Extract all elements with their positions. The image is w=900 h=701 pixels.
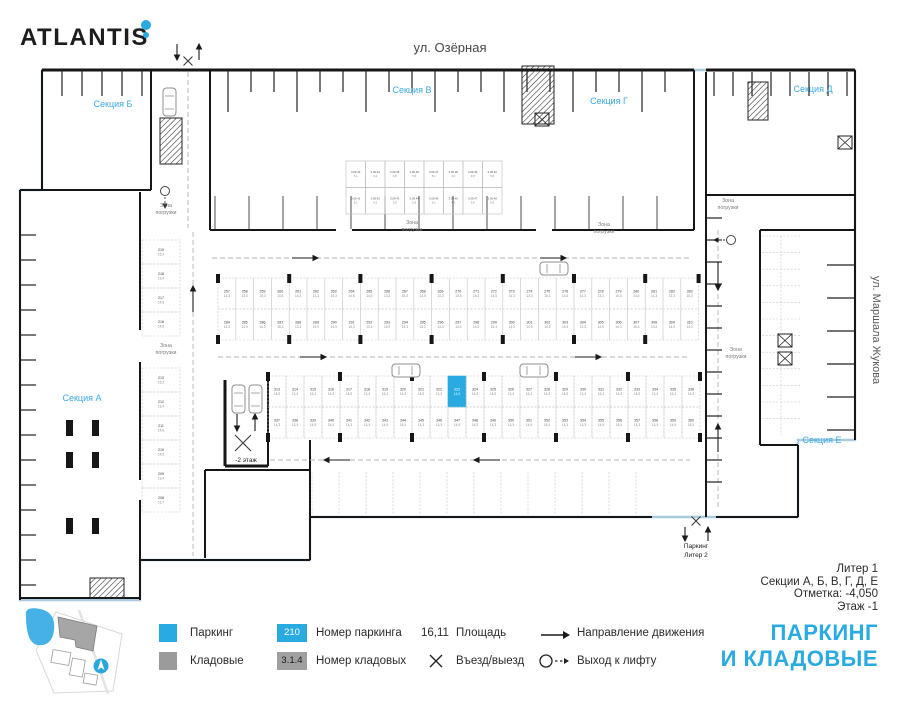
stall-label: 15,3 [348, 325, 354, 329]
stall-label: 265 [366, 290, 372, 294]
storage-cell-label: 3,8 [393, 174, 397, 178]
storage-cell-label: 5,6 [412, 174, 416, 178]
stall-label: 273 [509, 290, 515, 294]
stall-label: 209 [158, 472, 164, 476]
stall-label: 14,3 [274, 423, 280, 427]
stall-label: 354 [580, 419, 586, 423]
stall-label: 337 [274, 419, 280, 423]
stall-label: 13,3 [437, 325, 443, 329]
stall-label: 15,3 [598, 392, 604, 396]
stall-label: 272 [491, 290, 497, 294]
stall-label: 328 [544, 388, 550, 392]
loading-zone-label: Зона [730, 347, 742, 353]
storage-cell-label: 4,2 [373, 201, 377, 205]
stall-label: 213 [158, 376, 164, 380]
section-label-d: Секция Д [793, 84, 832, 94]
legend-parking-swatch [159, 624, 177, 642]
lift-exit-icon [538, 653, 572, 669]
stall-label: 14,3 [687, 325, 693, 329]
stall-label: 260 [277, 290, 283, 294]
stall-label: 305 [598, 321, 604, 325]
stall-label: 14,3 [400, 392, 406, 396]
stall-label: 263 [331, 290, 337, 294]
stall-label: 14,8 [158, 429, 164, 433]
stall-label: 355 [598, 419, 604, 423]
stall-label: 294 [402, 321, 408, 325]
stall-label: 329 [562, 388, 568, 392]
stall-label: 332 [616, 388, 622, 392]
loading-zone-label: погрузки [594, 229, 615, 235]
stall-label: 323 [454, 388, 460, 392]
stall-label: 301 [527, 321, 533, 325]
stall-label: 14,3 [490, 423, 496, 427]
bottom-entrance-label-2: Литер 2 [684, 552, 708, 559]
drawing-info: Литер 1 Секции А, Б, В, Г, Д, Е Отметка:… [761, 563, 878, 613]
stall-label: 353 [562, 419, 568, 423]
stall-label: 269 [438, 290, 444, 294]
stall-label: 309 [669, 321, 675, 325]
stall-label: 357 [634, 419, 640, 423]
stall-label: 14,9 [598, 423, 604, 427]
stall-label: 14,3 [418, 423, 424, 427]
stall-label: 296 [438, 321, 444, 325]
stall-label: 14,3 [473, 325, 479, 329]
stall-label: 288 [295, 321, 301, 325]
loading-zone-label: Зона [160, 203, 172, 209]
stall-label: 14,3 [259, 325, 265, 329]
stall-label: 313 [274, 388, 280, 392]
page-title-line-2: И КЛАДОВЫЕ [721, 646, 878, 672]
stall-label: 15,3 [400, 423, 406, 427]
stall-label: 14,3 [331, 325, 337, 329]
storage-cell-label: 4,2 [451, 201, 455, 205]
stall-label: 343 [382, 419, 388, 423]
stall-label: 277 [580, 290, 586, 294]
stall-label: 14,3 [472, 392, 478, 396]
stall-label: 13,3 [508, 423, 514, 427]
stall-label: 14,5 [274, 392, 280, 396]
stall-label: 14,3 [634, 423, 640, 427]
stall-label: 322 [436, 388, 442, 392]
stall-label: 13,3 [455, 294, 461, 298]
section-label-a: Секция А [62, 393, 101, 403]
stall-label: 13,3 [384, 294, 390, 298]
stall-label: 321 [418, 388, 424, 392]
storage-cell-label: 5,6 [412, 201, 416, 205]
stall-label: 14,3 [651, 294, 657, 298]
stall-label: 258 [242, 290, 248, 294]
stall-label: 338 [292, 419, 298, 423]
stall-label: 14,9 [382, 423, 388, 427]
stall-label: 13,3 [580, 392, 586, 396]
section-label-b: Секция Б [94, 99, 133, 109]
stall-label: 14,9 [455, 325, 461, 329]
legend-area-label: Площадь [456, 627, 506, 639]
car-icon [163, 88, 176, 116]
stall-label: 15,3 [633, 325, 639, 329]
stall-label: 14,3 [580, 294, 586, 298]
stall-label: 282 [669, 290, 675, 294]
legend-lift-label: Выход к лифту [577, 655, 656, 667]
stall-label: 211 [158, 424, 164, 428]
stall-label: 283 [687, 290, 693, 294]
stall-label: 266 [384, 290, 390, 294]
stall-label: 13,3 [669, 294, 675, 298]
stall-label: 14,9 [384, 325, 390, 329]
stall-label: 324 [472, 388, 478, 392]
page: ATLANTIS ул. Озёрная ул. Маршала Жукова [0, 0, 900, 701]
storage-cell-label: 5,6 [490, 174, 494, 178]
stall-label: 14,3 [437, 294, 443, 298]
stall-label: 15,3 [544, 423, 550, 427]
stall-label: 292 [366, 321, 372, 325]
stall-label: 270 [455, 290, 461, 294]
entry-exit-icon [428, 653, 444, 669]
storage-cell-label: 5,6 [490, 201, 494, 205]
storage-cell-label: 3,8 [471, 174, 475, 178]
stall-label: 15,3 [688, 423, 694, 427]
stall-label: 14,5 [562, 392, 568, 396]
stall-label: 15,2 [158, 381, 164, 385]
legend-storage-swatch [159, 652, 177, 670]
stall-label: 341 [346, 419, 352, 423]
stall-label: 347 [454, 419, 460, 423]
stall-label: 320 [400, 388, 406, 392]
stall-label: 345 [418, 419, 424, 423]
stall-label: 342 [364, 419, 370, 423]
stall-label: 325 [490, 388, 496, 392]
stall-label: 14,5 [562, 294, 568, 298]
loading-zone-label: Зона [406, 220, 418, 226]
stall-label: 349 [490, 419, 496, 423]
stall-label: 216 [158, 320, 164, 324]
stall-label: 281 [651, 290, 657, 294]
stall-label: 319 [382, 388, 388, 392]
stall-label: 291 [349, 321, 355, 325]
stall-label: 348 [472, 419, 478, 423]
stall-label: 14,3 [328, 392, 334, 396]
stall-label: 352 [544, 419, 550, 423]
stall-label: 14,5 [454, 392, 460, 396]
stall-label: 310 [687, 321, 693, 325]
stall-label: 300 [509, 321, 515, 325]
loading-zone-label: погрузки [156, 210, 177, 216]
car-icon [392, 364, 420, 377]
loading-zone-label: погрузки [726, 354, 747, 360]
plan-outer-boundary [20, 70, 855, 600]
stall-label: 285 [242, 321, 248, 325]
stall-label: 289 [313, 321, 319, 325]
stall-label: 14,3 [509, 294, 515, 298]
loading-zone-label: погрузки [402, 227, 423, 233]
stall-label: 15,3 [526, 392, 532, 396]
stall-label: 317 [346, 388, 352, 392]
car-icon [520, 364, 548, 377]
stall-label: 13,3 [292, 423, 298, 427]
stall-label: 276 [562, 290, 568, 294]
stall-label: 218 [158, 272, 164, 276]
stall-label: 359 [670, 419, 676, 423]
storage-cell-label: 5,1 [354, 201, 358, 205]
stall-label: 284 [224, 321, 230, 325]
legend-storage-number-swatch: 3.1.4 [277, 652, 307, 670]
stall-label: 13,3 [526, 294, 532, 298]
stall-label: 14,9 [526, 423, 532, 427]
stall-label: 14,5 [277, 294, 283, 298]
stall-label: 15,3 [615, 294, 621, 298]
stall-label: 14,6 [158, 301, 164, 305]
stall-label: 15,3 [310, 392, 316, 396]
stall-label: 268 [420, 290, 426, 294]
stall-label: 14,5 [491, 294, 497, 298]
stall-label: 219 [158, 248, 164, 252]
loading-zone-label: погрузки [156, 350, 177, 356]
page-title-line-1: ПАРКИНГ [721, 620, 878, 646]
stall-label: 318 [364, 388, 370, 392]
stall-label: 15,3 [472, 423, 478, 427]
stall-label: 15,3 [562, 325, 568, 329]
stall-label: 14,9 [242, 325, 248, 329]
ramp-level-label: -2 этаж [235, 457, 257, 464]
section-label-e: Секция Е [802, 435, 841, 445]
stall-label: 335 [670, 388, 676, 392]
stall-label: 14,9 [310, 423, 316, 427]
stall-label: 15,3 [491, 325, 497, 329]
stall-label: 13,3 [436, 392, 442, 396]
stall-label: 13,3 [313, 294, 319, 298]
stall-label: 14,5 [348, 294, 354, 298]
stall-label: 13,3 [364, 423, 370, 427]
site-locator-map [26, 608, 122, 694]
stall-label: 297 [455, 321, 461, 325]
stall-label: 14,9 [669, 325, 675, 329]
stall-label: 307 [633, 321, 639, 325]
stall-label: 14,5 [633, 294, 639, 298]
loading-zone-label: Зона [722, 198, 734, 204]
stall-label: 15,3 [259, 294, 265, 298]
storage-cell-label: 5,1 [432, 201, 436, 205]
stall-label: 13,3 [292, 392, 298, 396]
storage-cell-label: 4,2 [451, 174, 455, 178]
info-elevation: Отметка: -4,050 [761, 588, 878, 601]
stall-label: 308 [651, 321, 657, 325]
stall-label: 257 [224, 290, 230, 294]
storage-cell-label: 5,1 [354, 174, 358, 178]
stall-label: 314 [292, 388, 298, 392]
page-title: ПАРКИНГ И КЛАДОВЫЕ [721, 620, 878, 672]
stall-label: 344 [400, 419, 406, 423]
stall-label: 274 [527, 290, 533, 294]
stall-label: 14,3 [224, 294, 230, 298]
stall-label: 13,3 [224, 325, 230, 329]
stall-label: 14,9 [313, 325, 319, 329]
stall-label: 13,3 [436, 423, 442, 427]
legend-parking-label: Паркинг [190, 627, 233, 639]
stall-label: 13,3 [652, 392, 658, 396]
legend-direction-label: Направление движения [577, 627, 704, 639]
stall-label: 346 [436, 419, 442, 423]
stall-label: 13,3 [508, 392, 514, 396]
legend-area-sample: 16,11 [421, 627, 449, 639]
stall-label: 14,3 [366, 294, 372, 298]
stall-label: 14,5 [418, 392, 424, 396]
stall-label: 208 [158, 496, 164, 500]
stall-label: 330 [580, 388, 586, 392]
stall-label: 15,3 [402, 294, 408, 298]
stall-label: 299 [491, 321, 497, 325]
stall-label: 13,4 [158, 477, 164, 481]
car-icon [249, 385, 262, 413]
legend-parking-number-swatch: 210 [277, 624, 307, 642]
section-label-g: Секция Г [590, 96, 628, 106]
stall-label: 13,3 [295, 325, 301, 329]
storage-cell-label: 4,2 [373, 174, 377, 178]
stall-label: 14,3 [402, 325, 408, 329]
stall-label: 15,3 [420, 325, 426, 329]
stall-label: 306 [616, 321, 622, 325]
stall-label: 14,3 [346, 423, 352, 427]
stall-label: 15,3 [328, 423, 334, 427]
stall-label: 279 [616, 290, 622, 294]
stall-label: 267 [402, 290, 408, 294]
stall-label: 315 [310, 388, 316, 392]
legend-entry-label: Въезд/выезд [456, 655, 524, 667]
stall-label: 15,3 [277, 325, 283, 329]
stall-label: 259 [260, 290, 266, 294]
stall-label: 275 [544, 290, 550, 294]
loading-zone-label: Зона [160, 343, 172, 349]
bottom-entrance-label-1: Паркинг [684, 543, 709, 550]
info-liter: Литер 1 [761, 563, 878, 576]
storage-cell-label: 3,8 [471, 201, 475, 205]
stall-label: 15,3 [687, 294, 693, 298]
stall-label: 14,3 [544, 392, 550, 396]
stall-label: 331 [598, 388, 604, 392]
legend-storage-number-label: Номер кладовых [316, 655, 406, 667]
stall-label: 14,5 [420, 294, 426, 298]
stall-label: 271 [473, 290, 479, 294]
stall-label: 290 [331, 321, 337, 325]
stall-label: 15,3 [382, 392, 388, 396]
stall-label: 316 [328, 388, 334, 392]
legend-storage-label: Кладовые [190, 655, 244, 667]
stall-label: 336 [688, 388, 694, 392]
stall-label: 14,5 [490, 392, 496, 396]
section-label-v: Секция В [392, 85, 431, 95]
stall-label: 295 [420, 321, 426, 325]
stall-label: 16,7 [158, 501, 164, 505]
stall-label: 14,9 [526, 325, 532, 329]
stall-label: 262 [313, 290, 319, 294]
loading-zone-label: погрузки [718, 205, 739, 211]
stall-label: 302 [544, 321, 550, 325]
stall-label: 339 [310, 419, 316, 423]
stall-label: 326 [508, 388, 514, 392]
stall-label: 298 [473, 321, 479, 325]
stall-label: 13,3 [580, 423, 586, 427]
stall-label: 327 [526, 388, 532, 392]
stall-label: 14,8 [158, 325, 164, 329]
stall-label: 14,9 [670, 423, 676, 427]
stall-label: 13,3 [651, 325, 657, 329]
stall-label: 303 [562, 321, 568, 325]
stall-label: 340 [328, 419, 334, 423]
stall-label: 293 [384, 321, 390, 325]
storage-cell-label: 5,1 [432, 174, 436, 178]
stall-label: 334 [652, 388, 658, 392]
storage-cell-label: 3,8 [393, 201, 397, 205]
info-floor: Этаж -1 [761, 601, 878, 614]
stall-label: 14,5 [634, 392, 640, 396]
stall-label: 13,3 [652, 423, 658, 427]
stall-label: 13,3 [364, 392, 370, 396]
stall-label: 287 [277, 321, 283, 325]
stall-label: 15,3 [473, 294, 479, 298]
stall-label: 356 [616, 419, 622, 423]
stall-label: 15,3 [544, 294, 550, 298]
stall-label: 280 [633, 290, 639, 294]
stall-label: 13,3 [242, 294, 248, 298]
direction-arrow-icon [539, 628, 573, 642]
car-icon [232, 385, 245, 413]
stall-label: 360 [688, 419, 694, 423]
stall-label: 264 [349, 290, 355, 294]
stall-label: 14,3 [295, 294, 301, 298]
stall-label: 13,3 [366, 325, 372, 329]
stall-label: 15,3 [331, 294, 337, 298]
stall-label: 286 [260, 321, 266, 325]
stall-label: 350 [508, 419, 514, 423]
stall-label: 13,3 [598, 294, 604, 298]
stall-label: 13,3 [580, 325, 586, 329]
stall-label: 14,5 [346, 392, 352, 396]
stall-label: 278 [598, 290, 604, 294]
stall-label: 13,4 [158, 405, 164, 409]
stall-label: 14,3 [616, 392, 622, 396]
stall-label: 15,3 [158, 253, 164, 257]
stall-label: 304 [580, 321, 586, 325]
stall-label: 13,3 [509, 325, 515, 329]
stall-label: 351 [526, 419, 532, 423]
stall-label: 14,9 [598, 325, 604, 329]
stall-label: 210 [158, 448, 164, 452]
stall-label: 217 [158, 296, 164, 300]
car-icon [540, 262, 568, 275]
stall-label: 261 [295, 290, 301, 294]
stall-label: 14,3 [562, 423, 568, 427]
minimap-lake [26, 608, 54, 645]
stall-label: 15,3 [670, 392, 676, 396]
stall-label: 333 [634, 388, 640, 392]
stall-label: 14,3 [615, 325, 621, 329]
stall-label: 212 [158, 400, 164, 404]
legend-parking-number-label: Номер паркинга [316, 627, 402, 639]
stall-label: 13,4 [158, 277, 164, 281]
loading-zone-label: Зона [598, 222, 610, 228]
stall-label: 14,9 [454, 423, 460, 427]
stall-label: 14,3 [688, 392, 694, 396]
info-sections: Секции А, Б, В, Г, Д, Е [761, 576, 878, 589]
stall-label: 14,3 [544, 325, 550, 329]
stall-label: 14,6 [158, 453, 164, 457]
stall-label: 15,3 [616, 423, 622, 427]
stall-label: 358 [652, 419, 658, 423]
